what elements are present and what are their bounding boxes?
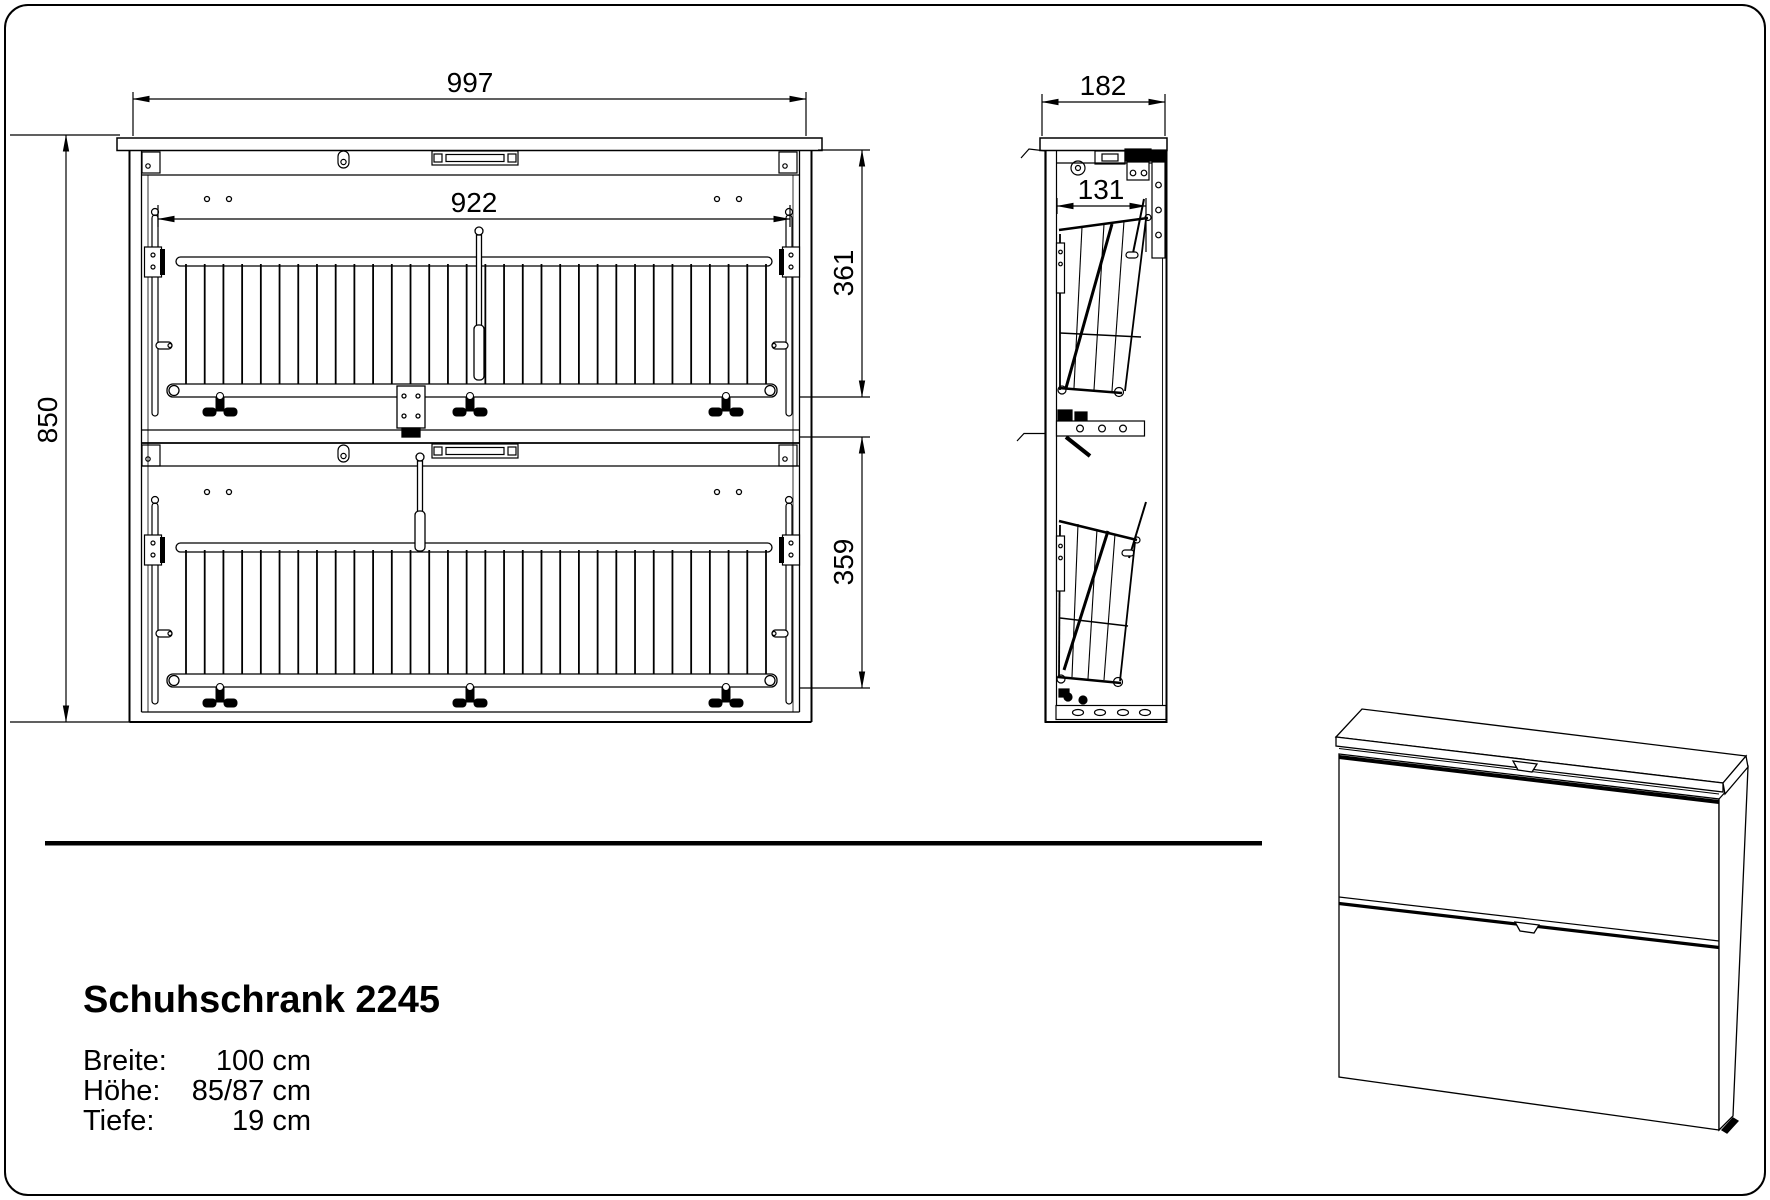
side-bottom-hardware [1056, 689, 1166, 720]
dim-lower-section-label: 359 [828, 539, 859, 586]
dim-side-depth: 182 [1042, 70, 1165, 136]
front-upper-rack [145, 209, 800, 417]
dim-front-height-label: 850 [32, 397, 63, 444]
side-view [1017, 138, 1168, 722]
spec-row: Breite: 100 cm [83, 1046, 311, 1076]
dim-rack-width-label: 922 [451, 187, 498, 218]
front-top-panel [117, 138, 822, 151]
spec-row: Tiefe: 19 cm [83, 1106, 311, 1136]
dim-side-inner-depth-label: 131 [1078, 174, 1125, 205]
front-lower-rack [145, 453, 800, 707]
section-divider-line [45, 841, 1262, 846]
dim-upper-section-label: 361 [828, 250, 859, 297]
cabinet-side-face [1719, 767, 1748, 1130]
spec-label: Höhe: [83, 1076, 160, 1106]
dim-side-inner-depth: 131 [1057, 174, 1146, 252]
dim-side-depth-label: 182 [1080, 70, 1127, 101]
front-lower-rack-wires [186, 550, 766, 676]
side-lower-basket [1057, 502, 1147, 687]
spec-label: Tiefe: [83, 1106, 154, 1136]
dim-front-width: 997 [133, 67, 806, 136]
perspective-view [1336, 709, 1748, 1133]
dim-front-height: 850 [32, 135, 66, 722]
spec-value: 100 cm [167, 1046, 311, 1076]
spec-label: Breite: [83, 1046, 167, 1076]
page: 997 850 922 361 359 [0, 0, 1770, 1200]
front-view [10, 135, 822, 722]
dim-front-width-label: 997 [447, 67, 494, 98]
side-upper-basket [1057, 199, 1152, 397]
spec-list: Breite: 100 cm Höhe: 85/87 cm Tiefe: 19 … [83, 1046, 311, 1136]
spec-value: 19 cm [154, 1106, 311, 1136]
product-title: Schuhschrank 2245 [83, 979, 440, 1022]
spec-row: Höhe: 85/87 cm [83, 1076, 311, 1106]
dim-rack-width: 922 [158, 187, 790, 227]
spec-value: 85/87 cm [160, 1076, 311, 1106]
side-middle-bracket [1057, 410, 1145, 456]
